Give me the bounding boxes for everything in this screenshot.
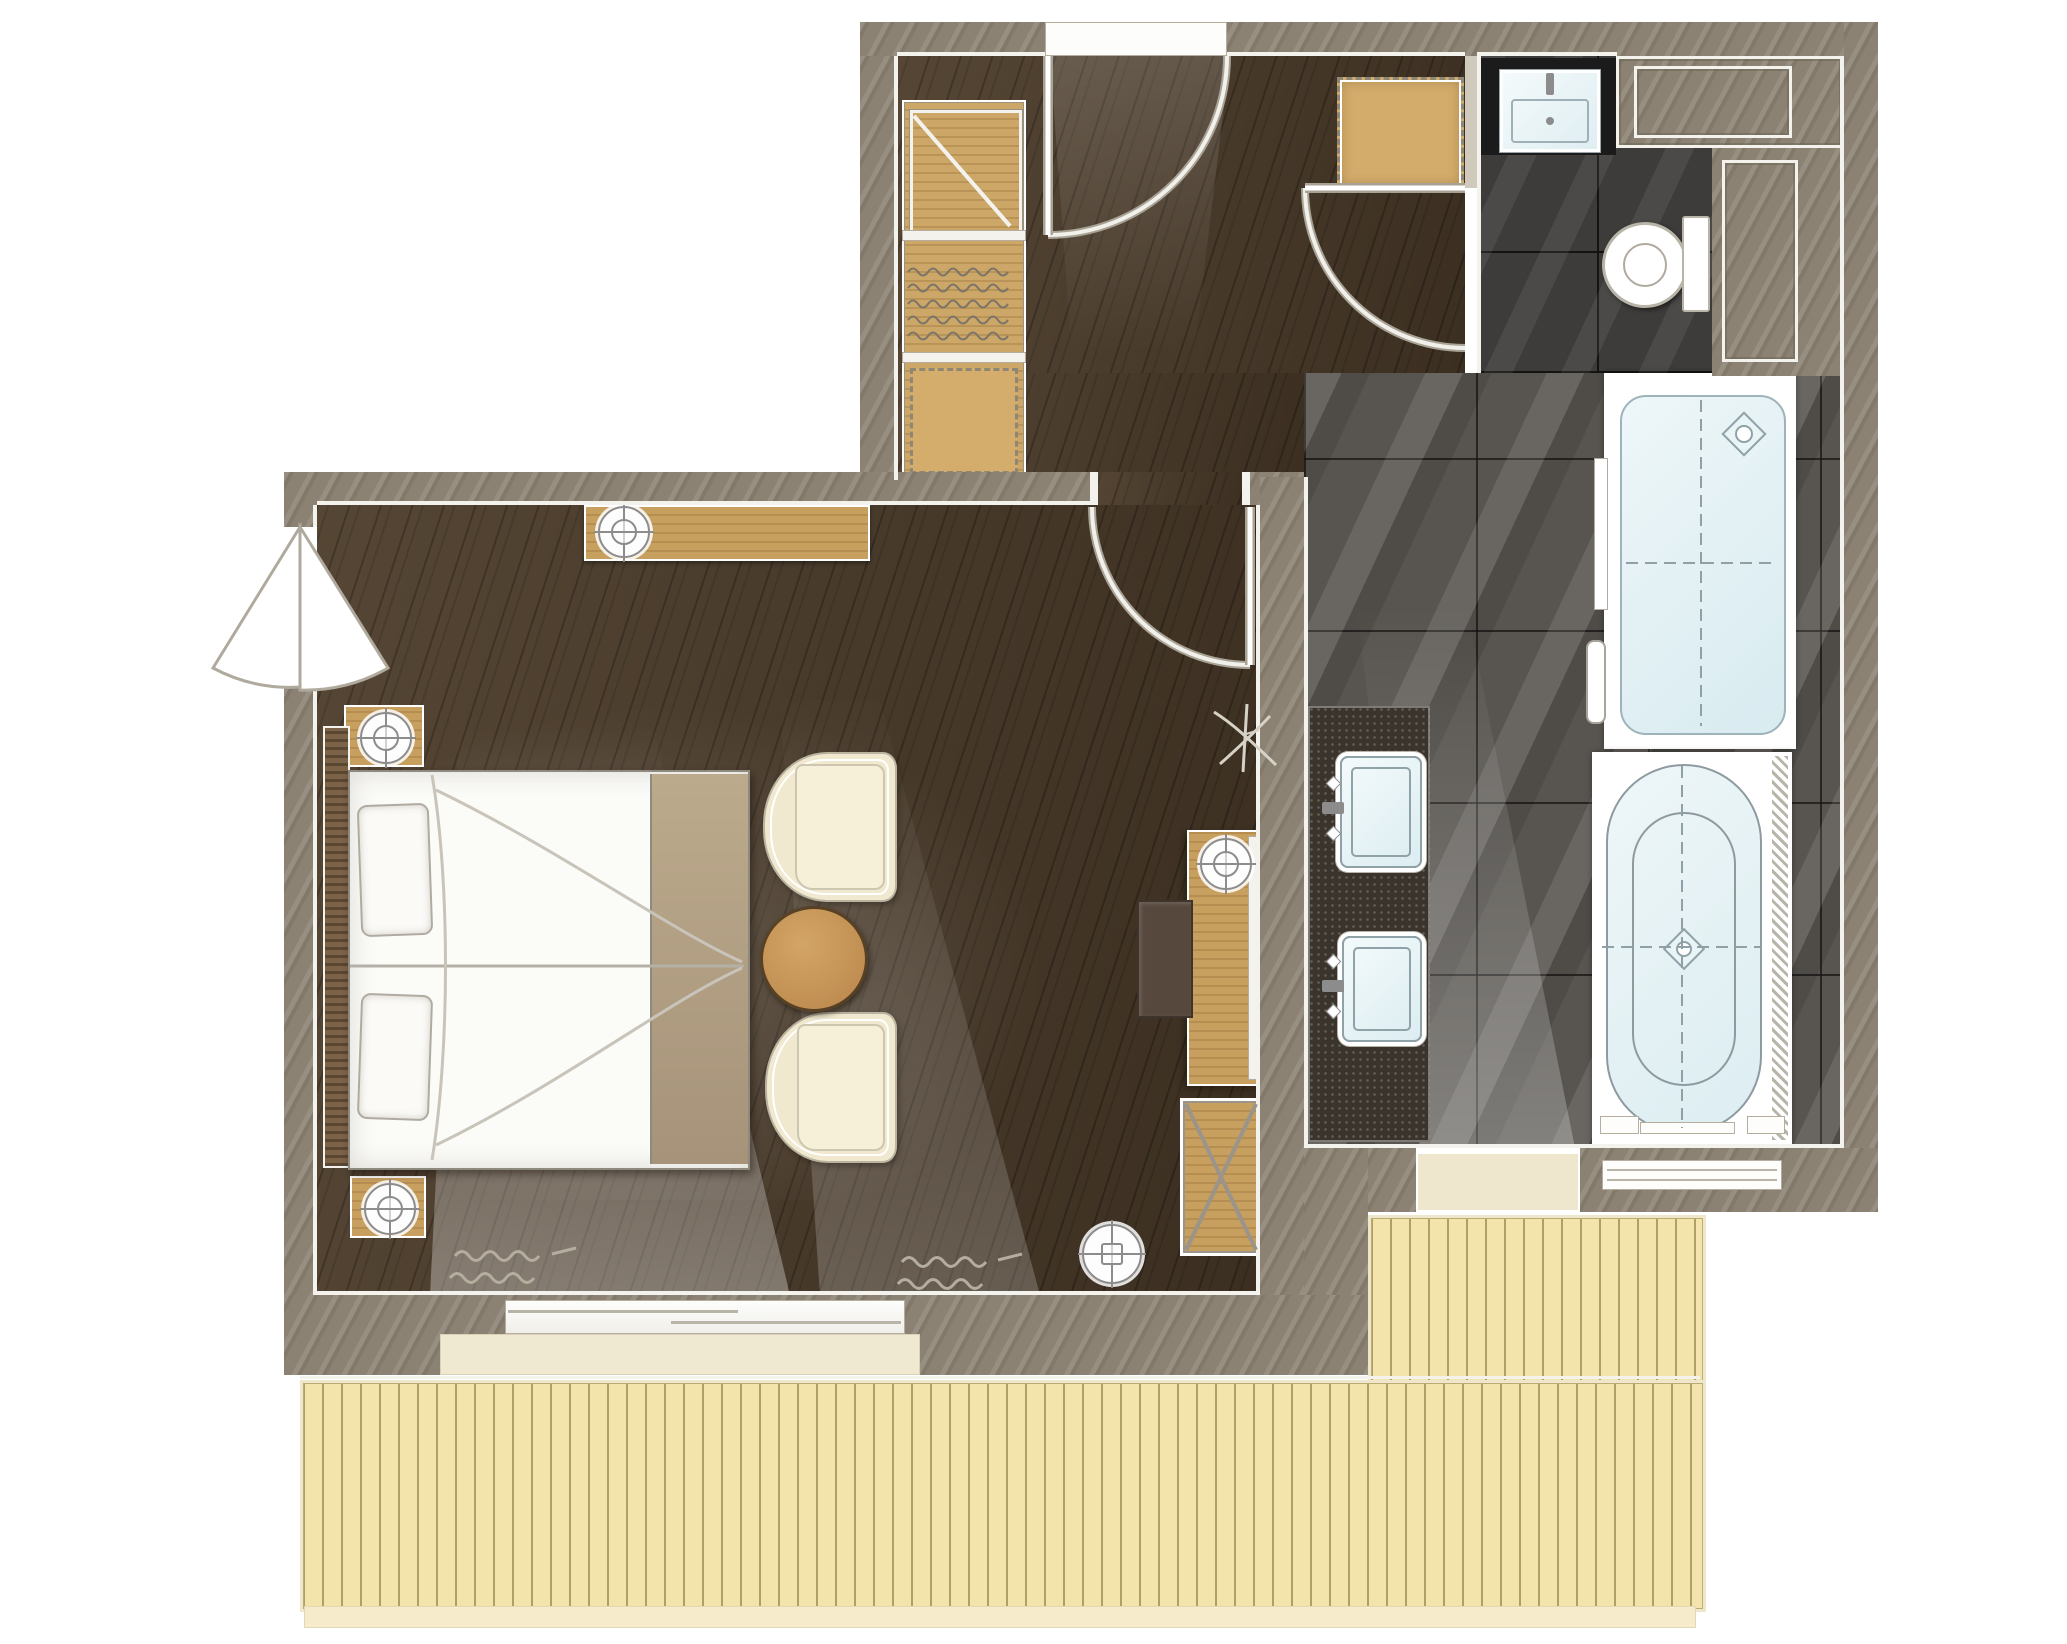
- lamp-target-icon: [364, 1183, 416, 1235]
- wall-face: [1840, 56, 1844, 1148]
- tub-faucet-deck: [1640, 1122, 1735, 1134]
- bathtub-ledge-hatch: [1772, 756, 1788, 1140]
- faucet-icon: [1322, 802, 1344, 814]
- wardrobe-shelf-box: [910, 110, 1022, 236]
- vanity-basin-bottom: [1342, 936, 1422, 1042]
- lamp-ring: [1101, 1243, 1123, 1265]
- terrace-top-line: [300, 1376, 1700, 1379]
- sliding-door[interactable]: [505, 1300, 905, 1334]
- toilet-bowl-inner: [1623, 243, 1667, 287]
- wardrobe: [902, 100, 1026, 480]
- desk-stool: [1137, 900, 1193, 1018]
- floor-lamp-icon: [1082, 1224, 1142, 1284]
- wall-niche-right: [1722, 160, 1798, 362]
- lamp-target-icon: [1200, 838, 1252, 890]
- wall-face: [1304, 477, 1308, 1148]
- wall-face: [313, 687, 317, 1295]
- floor-plan: [0, 0, 2067, 1644]
- wall-face: [897, 52, 1045, 56]
- wall-face: [1256, 505, 1260, 1295]
- terrace-edge: [304, 1606, 1696, 1628]
- terrace-main: [300, 1380, 1706, 1612]
- armchair-bottom: [765, 1012, 897, 1163]
- terrace-lobe: [1368, 1215, 1706, 1389]
- drain-dot: [1546, 117, 1554, 125]
- door-jamb: [1090, 472, 1098, 505]
- tub-faucet-deck: [1747, 1116, 1785, 1134]
- lamp-ring: [377, 1196, 404, 1223]
- entry-threshold[interactable]: [1045, 22, 1227, 56]
- wall-wc-partition: [1465, 56, 1477, 190]
- wardrobe-shelf-bar: [902, 230, 1026, 241]
- lamp-target-icon: [598, 506, 650, 558]
- bed-headboard: [325, 728, 348, 1166]
- wall-bath-bottom-left: [1368, 1148, 1416, 1212]
- terrace-threshold[interactable]: [1416, 1152, 1580, 1212]
- balcony-door-opening[interactable]: [284, 527, 317, 687]
- wall-face: [1477, 56, 1481, 373]
- faucet-icon: [1546, 73, 1554, 95]
- bed: [348, 770, 750, 1170]
- wall-niche-top: [1634, 66, 1792, 138]
- vanity-basin-top: [1340, 756, 1422, 868]
- wall-face: [894, 56, 898, 480]
- wall-hall-left: [860, 56, 897, 480]
- wall-divider: [1260, 477, 1304, 1295]
- lamp-ring: [1213, 851, 1240, 878]
- sliding-door-sill: [440, 1334, 920, 1375]
- wardrobe-drawer-unit: [910, 368, 1018, 474]
- wc-door-opening[interactable]: [1465, 188, 1477, 350]
- towel-rail: [1586, 640, 1606, 724]
- lamp-ring: [611, 519, 638, 546]
- armchair-top: [763, 752, 897, 902]
- wall-face: [317, 501, 1090, 505]
- luggage-rack: [1180, 1098, 1262, 1256]
- tub-faucet-deck: [1600, 1116, 1639, 1134]
- wall-face: [1306, 1144, 1844, 1148]
- toilet: [1602, 222, 1688, 308]
- lamp-target-icon: [360, 712, 412, 764]
- bath-window-rail: [1607, 1179, 1777, 1181]
- pillow: [357, 803, 434, 937]
- wall-face: [317, 1291, 1260, 1295]
- wall-face: [1477, 52, 1617, 56]
- luggage-bench: [1337, 77, 1464, 189]
- shower-tray: [1620, 395, 1786, 735]
- wall-face: [1227, 52, 1465, 56]
- side-table: [760, 906, 868, 1012]
- bath-window: [1602, 1160, 1782, 1190]
- wall-top: [860, 22, 1878, 56]
- bed-foot-runner: [650, 774, 748, 1164]
- wardrobe-shelf-bar: [902, 352, 1026, 363]
- bath-window-rail: [1607, 1169, 1777, 1171]
- faucet-icon: [1322, 980, 1344, 992]
- shower: [1604, 373, 1796, 749]
- door-jamb: [1242, 472, 1250, 505]
- toilet-cistern: [1682, 216, 1710, 312]
- sliding-door-rail: [508, 1310, 738, 1313]
- sliding-door-rail: [671, 1321, 901, 1324]
- wc-basin: [1500, 70, 1600, 152]
- lamp-ring: [373, 725, 400, 752]
- wall-face: [313, 505, 317, 527]
- shower-door-panel: [1594, 458, 1608, 610]
- pillow: [357, 993, 433, 1121]
- wall-right: [1844, 22, 1878, 1212]
